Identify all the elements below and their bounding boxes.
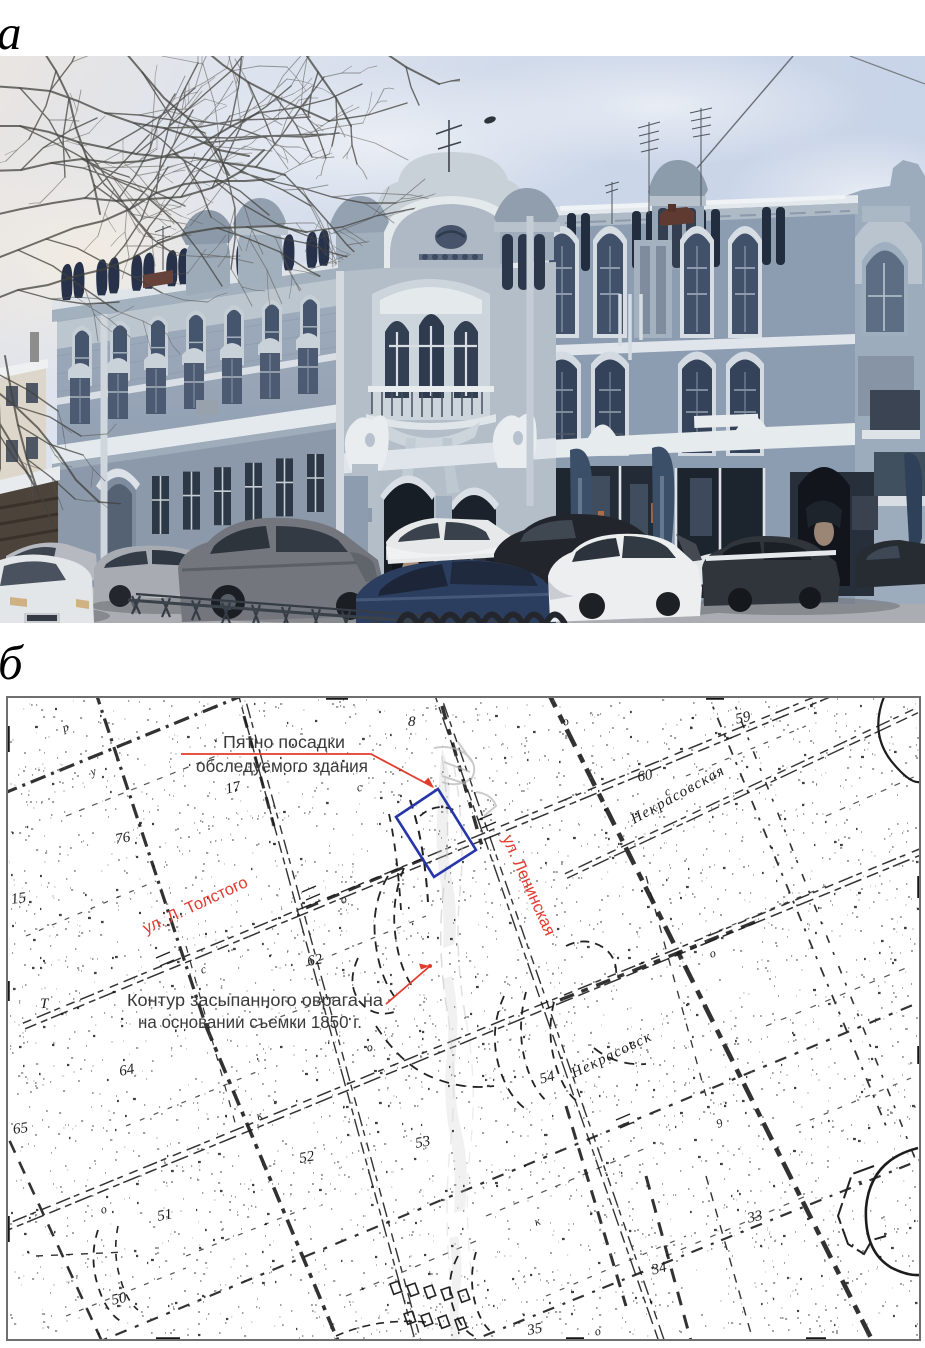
svg-text:33: 33 xyxy=(745,1208,764,1227)
svg-text:Контур засыпанного оврага на: Контур засыпанного оврага на xyxy=(127,990,383,1010)
svg-text:на основании съемки 1850 г.: на основании съемки 1850 г. xyxy=(138,1012,362,1032)
svg-text:15: 15 xyxy=(10,890,28,908)
svg-text:53: 53 xyxy=(414,1133,432,1151)
svg-text:65: 65 xyxy=(12,1120,30,1138)
svg-text:обследуемого здания: обследуемого здания xyxy=(196,756,368,776)
svg-text:51: 51 xyxy=(156,1206,174,1224)
svg-text:8: 8 xyxy=(408,714,416,730)
svg-text:Пятно посадки: Пятно посадки xyxy=(223,732,345,752)
svg-text:35: 35 xyxy=(525,1320,544,1339)
